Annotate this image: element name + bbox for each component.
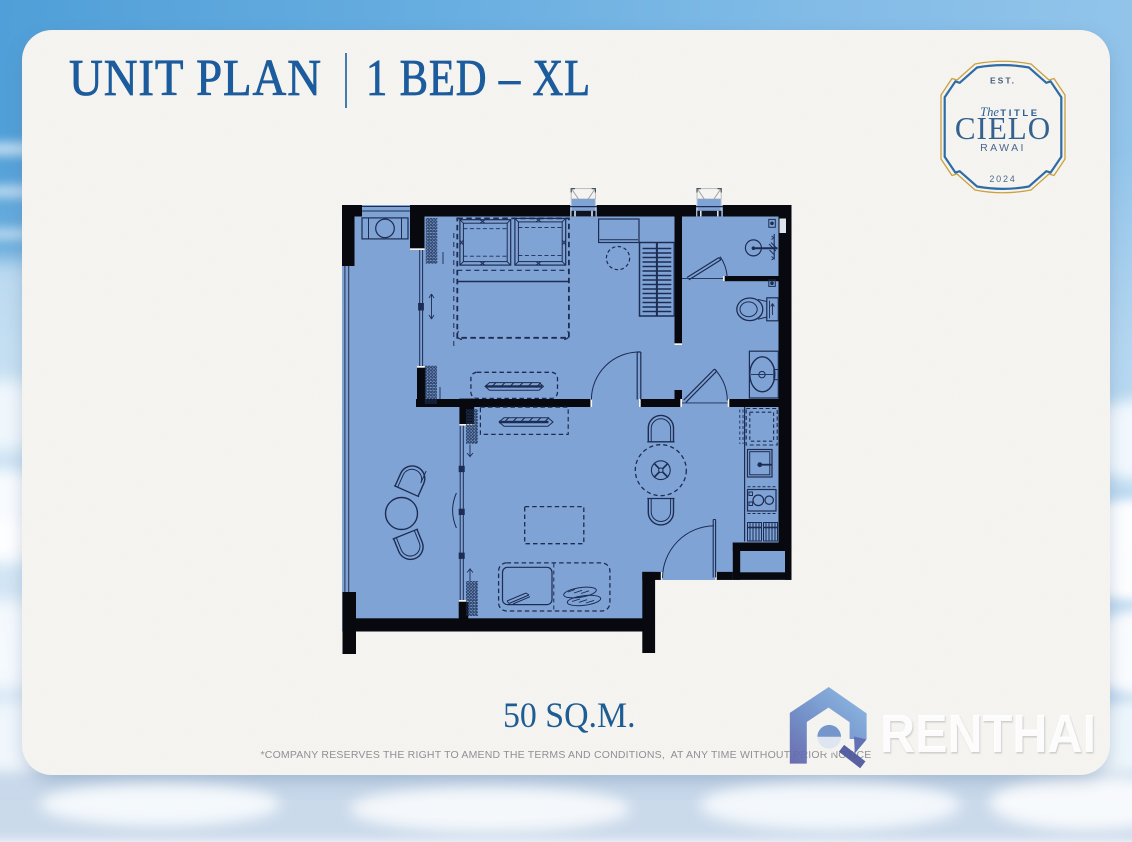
- svg-text:RAWAI: RAWAI: [980, 142, 1026, 154]
- svg-text:EST.: EST.: [990, 75, 1016, 85]
- svg-text:2024: 2024: [989, 174, 1016, 184]
- svg-text:CIELO: CIELO: [955, 111, 1051, 147]
